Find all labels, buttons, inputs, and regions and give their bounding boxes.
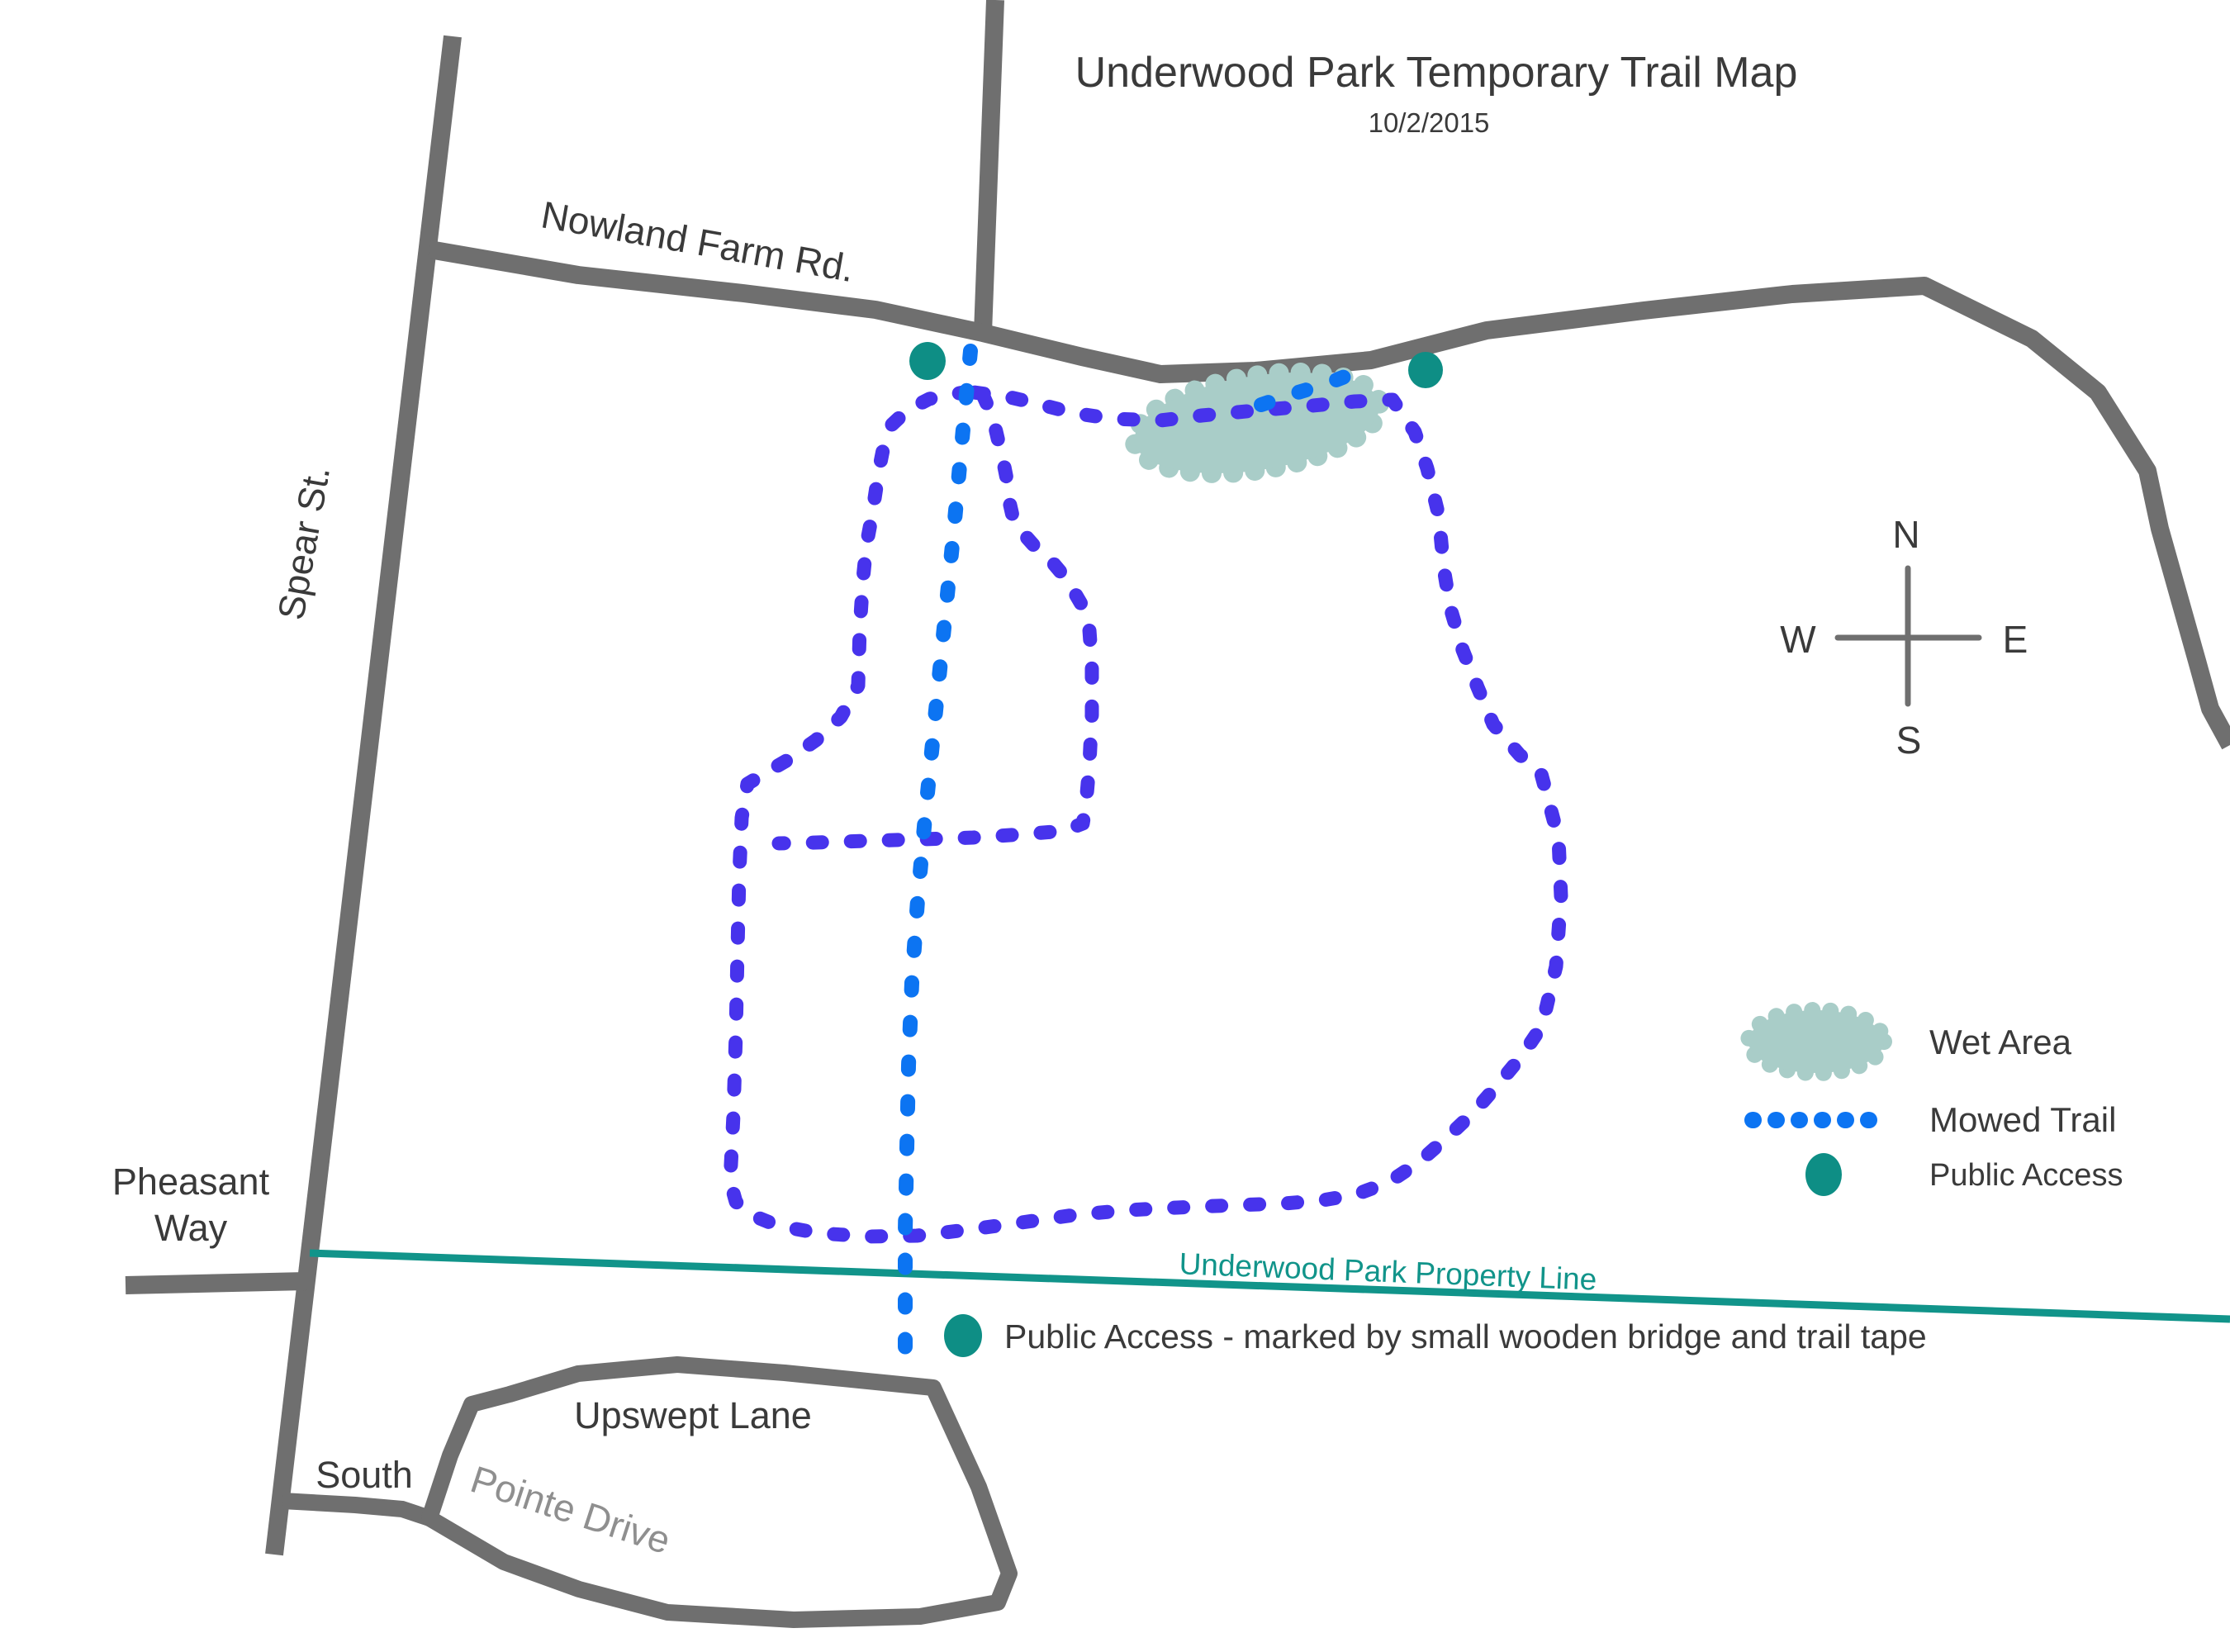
legend: Wet Area Mowed Trail Public Access [1748,1010,2123,1196]
map-title: Underwood Park Temporary Trail Map [1075,49,1798,97]
compass-w: W [1780,618,1816,661]
note-text: Public Access - marked by small wooden b… [1004,1317,1927,1355]
legend-public-access-label: Public Access [1929,1158,2123,1193]
compass-n: N [1892,513,1919,556]
road-nowland-farm [429,249,2230,745]
compass-rose: N S W E [1780,513,2028,762]
road-south-pointe-connector [282,1501,429,1518]
public-access-dot-west [909,342,946,380]
compass-e: E [2003,618,2028,661]
trail-map: Underwood Park Temporary Trail Map 10/2/… [0,0,2230,1652]
legend-public-access-swatch [1805,1153,1842,1196]
legend-mowed-trail-label: Mowed Trail [1929,1100,2116,1139]
road-top-stub [983,0,995,333]
trail-middle-loop [779,395,1092,843]
public-access-dot-east [1408,352,1443,388]
road-pheasant-way [126,1281,306,1285]
trail-big-loop [730,392,1561,1237]
trail-map-canvas: Underwood Park Temporary Trail Map 10/2/… [0,0,2230,1652]
legend-wet-area-label: Wet Area [1929,1023,2072,1061]
legend-wet-area-swatch [1748,1010,1884,1073]
label-south: South [316,1454,413,1496]
compass-s: S [1896,719,1922,762]
label-pointe-drive: Pointe Drive [466,1457,676,1562]
road-spear-st [274,36,453,1555]
legend-wet-area-fill [1748,1010,1884,1073]
label-pheasant-line2: Way [154,1207,228,1249]
label-upswept-lane: Upswept Lane [574,1394,812,1436]
note-public-access-dot [944,1314,982,1357]
label-pheasant-line1: Pheasant [112,1161,270,1203]
map-date: 10/2/2015 [1369,107,1490,138]
label-spear-st: Spear St. [269,463,338,624]
trail-access-line [905,351,970,1367]
